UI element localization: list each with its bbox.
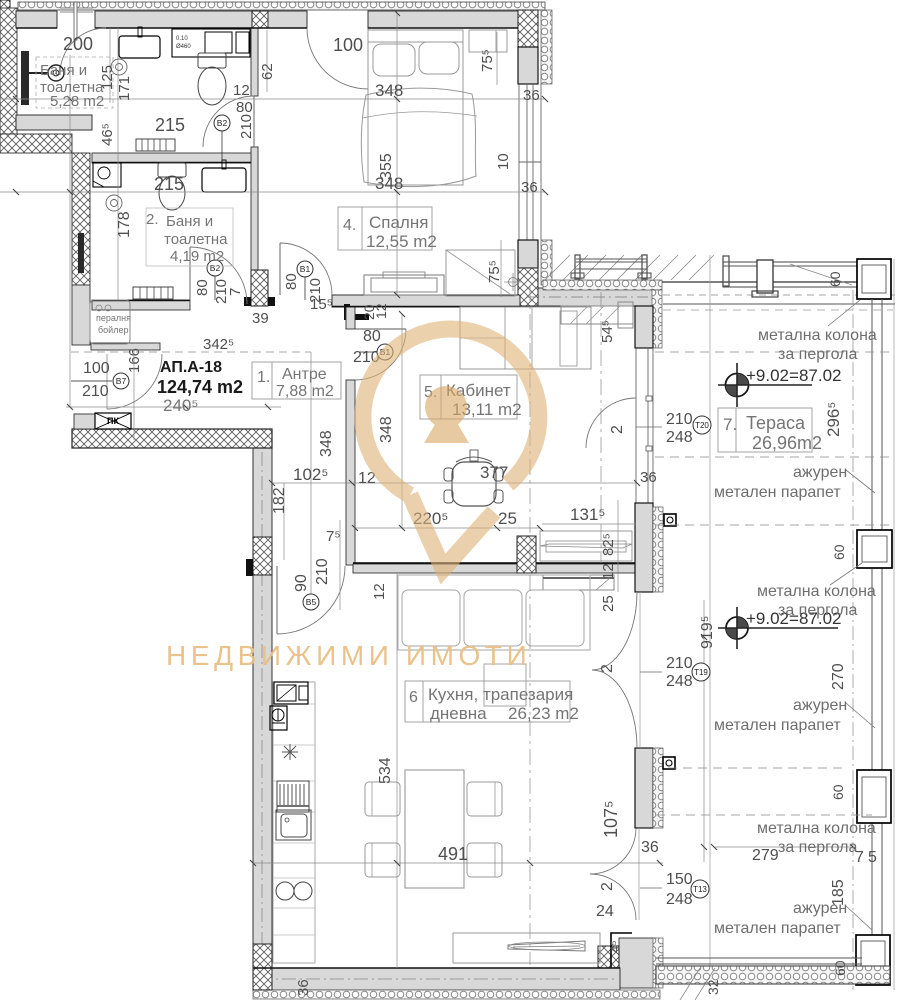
- svg-text:200: 200: [63, 34, 93, 54]
- svg-text:90: 90: [293, 574, 310, 592]
- svg-text:12: 12: [373, 303, 389, 319]
- svg-text:Т13: Т13: [693, 885, 707, 894]
- svg-text:178: 178: [116, 211, 133, 238]
- svg-text:метален парапет: метален парапет: [714, 717, 841, 734]
- svg-text:342⁵: 342⁵: [203, 336, 234, 353]
- svg-text:60: 60: [831, 544, 847, 560]
- svg-text:В5: В5: [306, 597, 317, 607]
- svg-text:2: 2: [599, 882, 616, 891]
- svg-text:2: 2: [609, 425, 626, 434]
- svg-text:метална колона: метална колона: [757, 583, 876, 600]
- svg-text:26,96m2: 26,96m2: [752, 433, 822, 453]
- svg-text:1.: 1.: [257, 369, 270, 386]
- svg-text:за пергола: за пергола: [778, 839, 858, 856]
- svg-text:12: 12: [371, 583, 388, 600]
- svg-text:+9.02=87.02: +9.02=87.02: [746, 366, 841, 385]
- svg-text:166: 166: [126, 348, 143, 373]
- svg-text:В7: В7: [116, 376, 127, 386]
- svg-text:2.: 2.: [146, 211, 159, 228]
- svg-text:В2: В2: [217, 118, 228, 128]
- svg-text:12: 12: [600, 563, 617, 580]
- svg-text:НЕДВИЖИМИ ИМОТИ: НЕДВИЖИМИ ИМОТИ: [166, 640, 531, 671]
- svg-text:25: 25: [498, 509, 517, 528]
- svg-text:75⁵: 75⁵: [486, 260, 503, 283]
- svg-text:бойлер: бойлер: [98, 325, 128, 335]
- svg-text:100: 100: [83, 360, 110, 377]
- svg-text:метален парапет: метален парапет: [714, 920, 841, 937]
- svg-text:36: 36: [640, 469, 657, 486]
- svg-text:2: 2: [599, 664, 616, 673]
- svg-text:355: 355: [378, 153, 395, 180]
- svg-text:7.: 7.: [723, 415, 737, 434]
- svg-text:Антре: Антре: [282, 366, 327, 383]
- svg-text:24: 24: [596, 903, 614, 920]
- svg-text:182: 182: [271, 487, 288, 514]
- svg-text:4.: 4.: [343, 217, 356, 234]
- svg-text:107⁵: 107⁵: [601, 801, 621, 839]
- svg-text:36: 36: [641, 839, 659, 856]
- svg-text:210: 210: [307, 278, 324, 303]
- svg-text:ажурен: ажурен: [793, 697, 847, 714]
- svg-text:за пергола: за пергола: [778, 346, 858, 363]
- svg-text:248: 248: [666, 673, 693, 690]
- svg-text:36: 36: [521, 179, 538, 196]
- svg-text:4,19 m2: 4,19 m2: [170, 248, 224, 265]
- svg-text:метална колона: метална колона: [757, 820, 876, 837]
- svg-text:7⁵: 7⁵: [326, 528, 341, 545]
- svg-text:дневна: дневна: [430, 704, 487, 723]
- svg-text:36: 36: [523, 87, 540, 104]
- svg-text:124,74 m2: 124,74 m2: [157, 377, 243, 397]
- svg-text:12: 12: [233, 82, 250, 99]
- svg-text:В1: В1: [300, 264, 311, 274]
- svg-text:210: 210: [238, 114, 255, 139]
- svg-text:100: 100: [333, 35, 363, 55]
- svg-text:5,28 m2: 5,28 m2: [50, 93, 104, 110]
- svg-text:279: 279: [752, 847, 779, 864]
- svg-text:4⁵: 4⁵: [607, 940, 622, 953]
- svg-text:296⁵: 296⁵: [824, 402, 843, 437]
- svg-text:171: 171: [116, 76, 133, 101]
- svg-text:534: 534: [377, 757, 394, 784]
- svg-text:62: 62: [259, 63, 276, 80]
- svg-text:54⁵: 54⁵: [599, 320, 616, 343]
- svg-text:270: 270: [830, 663, 847, 690]
- svg-text:131⁵: 131⁵: [570, 505, 605, 524]
- svg-text:210: 210: [213, 279, 230, 304]
- svg-text:185: 185: [830, 879, 847, 906]
- svg-text:348: 348: [378, 416, 395, 443]
- svg-text:Ø460: Ø460: [176, 44, 191, 50]
- svg-text:215: 215: [154, 174, 184, 194]
- svg-text:5: 5: [868, 849, 877, 866]
- svg-text:210: 210: [82, 383, 109, 400]
- svg-text:215: 215: [155, 115, 185, 135]
- svg-text:82⁵: 82⁵: [600, 533, 617, 556]
- svg-text:метален парапет: метален парапет: [714, 484, 841, 501]
- svg-text:пералня: пералня: [96, 313, 131, 323]
- svg-text:Баня и: Баня и: [166, 213, 213, 230]
- svg-text:Кухня, трапезария: Кухня, трапезария: [428, 685, 573, 704]
- svg-text:60: 60: [832, 960, 848, 976]
- svg-text:102⁵: 102⁵: [293, 465, 328, 484]
- svg-text:210: 210: [666, 411, 693, 428]
- svg-text:80: 80: [194, 279, 211, 296]
- svg-text:тоалетна: тоалетна: [164, 231, 228, 248]
- svg-text:240⁵: 240⁵: [163, 396, 198, 415]
- svg-text:210: 210: [666, 655, 693, 672]
- svg-text:10: 10: [495, 153, 512, 170]
- svg-text:АП.А-18: АП.А-18: [160, 359, 222, 376]
- svg-text:7,88 m2: 7,88 m2: [276, 383, 334, 400]
- svg-text:36: 36: [295, 979, 312, 996]
- svg-text:ажурен: ажурен: [793, 464, 847, 481]
- svg-text:25: 25: [600, 595, 617, 612]
- svg-text:0.10: 0.10: [176, 36, 188, 42]
- svg-text:ПК: ПК: [107, 416, 119, 426]
- svg-text:12,55 m2: 12,55 m2: [366, 232, 437, 251]
- svg-text:32: 32: [705, 979, 721, 995]
- svg-text:248: 248: [666, 891, 693, 908]
- svg-text:Баня и: Баня и: [40, 62, 87, 79]
- svg-text:491: 491: [438, 844, 468, 864]
- svg-text:210: 210: [314, 558, 331, 585]
- svg-text:Тераса: Тераса: [746, 413, 806, 433]
- svg-text:60: 60: [830, 784, 846, 800]
- svg-text:80: 80: [236, 99, 253, 116]
- svg-text:39: 39: [252, 310, 269, 327]
- svg-text:Т20: Т20: [695, 421, 709, 430]
- svg-text:919⁵: 919⁵: [699, 616, 716, 649]
- svg-text:348: 348: [375, 81, 403, 100]
- svg-text:248: 248: [666, 429, 693, 446]
- svg-text:80: 80: [363, 328, 381, 345]
- svg-text:7: 7: [855, 849, 864, 866]
- svg-text:26,23 m2: 26,23 m2: [508, 704, 579, 723]
- svg-text:Спалня: Спалня: [369, 213, 428, 232]
- svg-text:80: 80: [283, 273, 300, 290]
- svg-text:75⁵: 75⁵: [479, 49, 496, 72]
- svg-text:метална колона: метална колона: [758, 327, 877, 344]
- svg-text:150: 150: [666, 871, 693, 888]
- svg-text:за пергола: за пергола: [778, 602, 858, 619]
- svg-text:60: 60: [827, 271, 843, 287]
- svg-text:Т19: Т19: [694, 668, 708, 677]
- svg-text:348: 348: [318, 430, 335, 457]
- svg-text:6: 6: [409, 689, 418, 706]
- svg-text:46⁵: 46⁵: [99, 123, 116, 146]
